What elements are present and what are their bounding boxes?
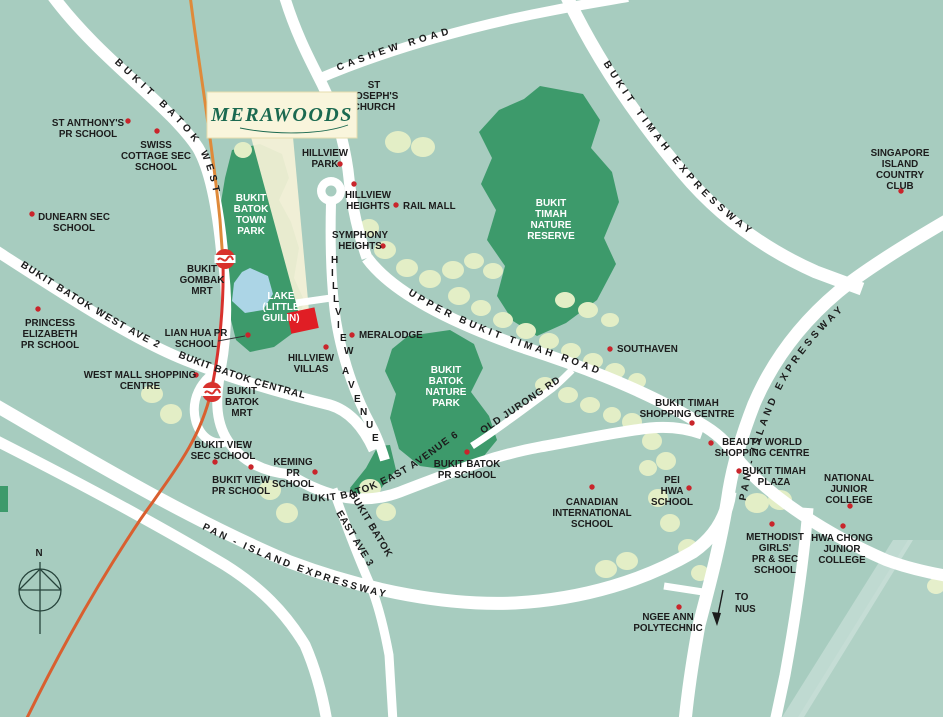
- poi-dot: [464, 449, 469, 454]
- poi-dot: [29, 211, 34, 216]
- hillview-roundabout-island: [326, 186, 337, 197]
- merawoods-logo: MERAWOODS: [207, 92, 357, 138]
- poi-dot: [154, 128, 159, 133]
- label-princess-elizabeth: PRINCESSELIZABETHPR SCHOOL: [21, 318, 79, 351]
- poi-dot: [769, 521, 774, 526]
- label-lake-little-guilin: LAKE(LITTLEGUILIN): [262, 291, 300, 324]
- poi-dot: [323, 344, 328, 349]
- label-bukit-view-sec: BUKIT VIEWSEC SCHOOL: [191, 440, 256, 462]
- label-bukit-view-pr: BUKIT VIEWPR SCHOOL: [212, 475, 271, 497]
- map-canvas: BUKIT BATOK WEST CASHEW ROAD BUKIT TIMAH…: [0, 0, 943, 717]
- poi-dot: [840, 523, 845, 528]
- poi-dot: [245, 332, 250, 337]
- label-ngee-ann: NGEE ANNPOLYTECHNIC: [633, 612, 702, 634]
- poi-dot: [125, 118, 130, 123]
- poi-dot: [312, 469, 317, 474]
- poi-dot: [708, 440, 713, 445]
- poi-dot: [351, 181, 356, 186]
- poi-dot: [589, 484, 594, 489]
- poi-dot: [248, 464, 253, 469]
- label-beauty-world: BEAUTY WORLDSHOPPING CENTRE: [715, 437, 810, 459]
- label-meralodge: MERALODGE: [359, 330, 423, 341]
- poi-dot: [35, 306, 40, 311]
- poi-dot: [393, 202, 398, 207]
- small-green-patch: [0, 486, 8, 512]
- label-town-park: BUKITBATOKTOWNPARK: [234, 193, 269, 237]
- poi-dot: [736, 468, 741, 473]
- poi-dot: [349, 332, 354, 337]
- label-hillview-heights: HILLVIEWHEIGHTS: [345, 190, 392, 212]
- label-hillview-villas: HILLVIEWVILLAS: [288, 353, 335, 375]
- label-rail-mall: RAIL MALL: [403, 201, 456, 212]
- road-site-stub: [296, 298, 331, 303]
- poi-dot: [676, 604, 681, 609]
- poi-dot: [686, 485, 691, 490]
- label-bukit-batok-pr: BUKIT BATOKPR SCHOOL: [434, 459, 501, 481]
- compass-north-label: N: [35, 548, 42, 559]
- poi-dot: [607, 346, 612, 351]
- merawoods-location-map: BUKIT BATOK WEST CASHEW ROAD BUKIT TIMAH…: [0, 0, 943, 717]
- poi-dot: [689, 420, 694, 425]
- label-njc: NATIONALJUNIORCOLLEGE: [824, 473, 874, 506]
- label-st-anthonys: ST ANTHONY'SPR SCHOOL: [52, 118, 125, 140]
- label-symphony-heights: SYMPHONYHEIGHTS: [332, 230, 389, 252]
- label-southaven: SOUTHAVEN: [617, 344, 678, 355]
- logo-wordmark: MERAWOODS: [210, 104, 353, 126]
- label-methodist-girls: METHODISTGIRLS'PR & SECSCHOOL: [746, 532, 804, 576]
